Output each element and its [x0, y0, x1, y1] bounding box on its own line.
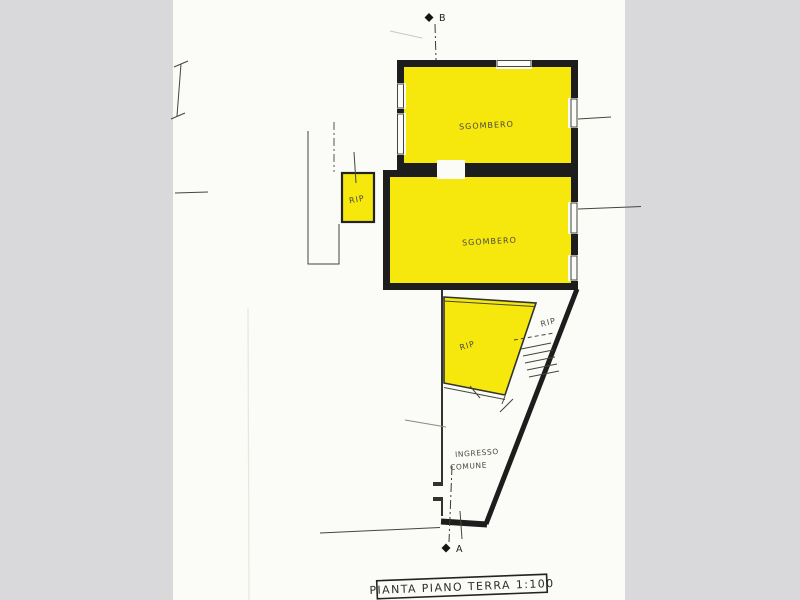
section-marker-b-label: B	[439, 13, 446, 24]
section-marker-a-diamond	[442, 544, 451, 553]
floor-plan-drawing: B	[0, 0, 800, 600]
left-dimension-marks	[171, 61, 208, 193]
section-marker-b-diamond	[425, 13, 434, 22]
left-boundary-lines	[308, 122, 339, 264]
ground-baseline	[320, 528, 440, 534]
section-marker-a-label: A	[456, 544, 463, 555]
entrance-label-line2: COMUNE	[450, 460, 488, 472]
title-box: PIANTA PIANO TERRA 1:100	[369, 574, 555, 599]
room-label-rip-stair: RIP	[540, 316, 557, 329]
entrance-label-line1: INGRESSO	[455, 447, 499, 459]
scanned-floor-plan-page: B	[0, 0, 800, 600]
section-line-a: A	[442, 466, 464, 555]
